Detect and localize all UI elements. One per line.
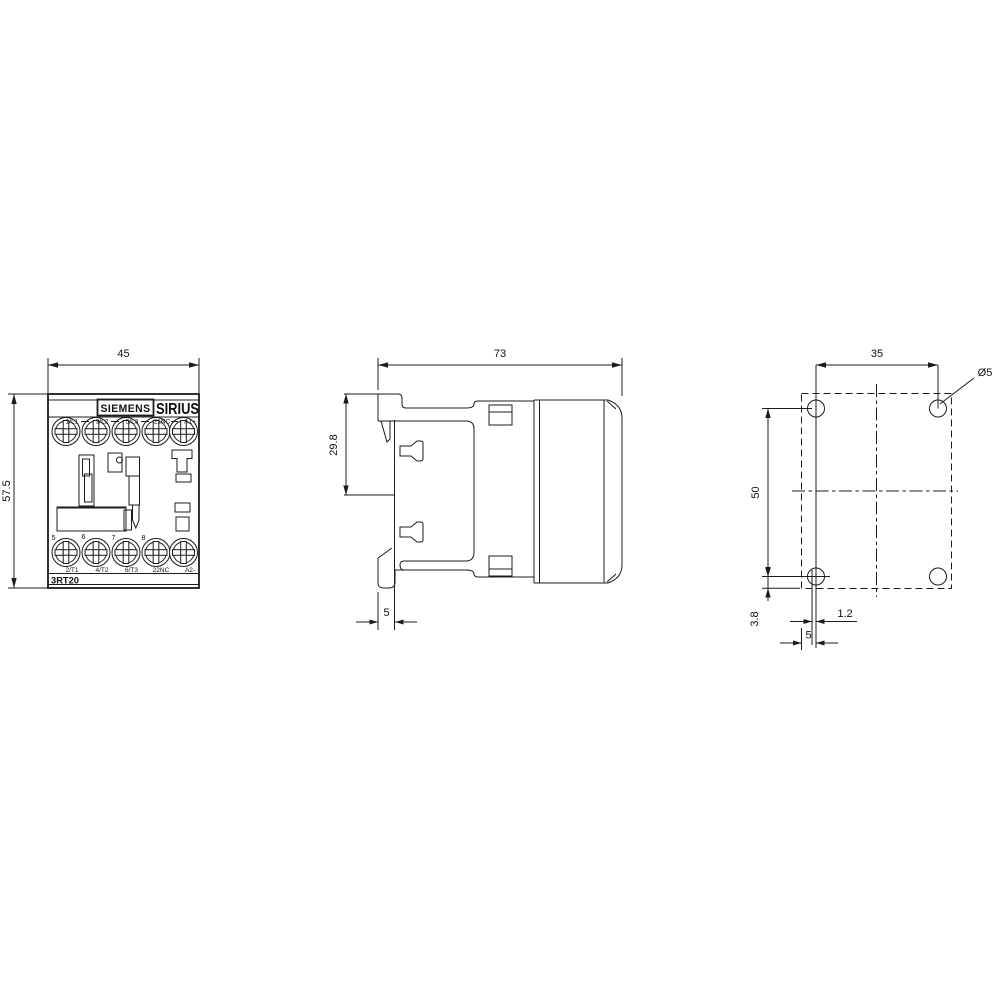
siemens-logo: SIEMENS [101,403,151,415]
arrow-up [765,588,770,597]
release-tab-top [400,441,423,461]
contact-number: 5 [52,535,56,542]
mounting-hole [930,568,947,585]
terminal-label: 22NC [153,567,170,574]
release-tab-bottom [400,522,423,542]
terminal-labels-bottom: 2/T1 4/T2 6/T3 22NC A2- [65,567,195,574]
terminal-label: 4/T2 [95,567,108,574]
side-view: 73 29.8 5 [328,348,622,630]
dimension-drawing: 45 57.5 SIEMENS SIRIUS 1/L1 3/L2 5/L3 21… [0,0,1000,1000]
model-label: 3RT20 [51,576,79,587]
front-mid-features [57,450,192,531]
terminal-label: A2- [185,567,195,574]
hole-diameter-label: Ø5 [978,367,993,379]
arrow-up [343,394,348,404]
contact-number: 6 [82,534,86,541]
arrow-down [343,486,348,496]
mounting-feet-detail [489,405,512,576]
arrow-left [816,362,826,367]
sirius-logo: SIRIUS [156,401,199,418]
screw-icon [142,539,170,567]
foot-block [489,556,512,576]
terminal-label: 2/T1 [65,567,78,574]
front-view: 45 57.5 SIEMENS SIRIUS 1/L1 3/L2 5/L3 21… [1,348,199,588]
foot-block [489,405,512,425]
terminal-label: 6/T3 [125,567,138,574]
arrow-left [816,641,825,646]
terminal-label: 21NC [154,419,171,426]
arrow-down [765,568,770,577]
drawing-canvas: 45 57.5 SIEMENS SIRIUS 1/L1 3/L2 5/L3 21… [0,0,1000,1000]
screw-icon [170,539,198,567]
arrow-left [48,362,58,367]
dim-side-offset: 5 [805,630,811,642]
dim-din-rail: 29.8 [328,434,340,455]
screw-icon [112,539,140,567]
terminal-label: 1/L1 [66,419,79,426]
dim-side-depth: 73 [494,348,506,360]
arrow-down [11,578,16,588]
arrow-right [928,362,938,367]
dim-front-height: 57.5 [1,480,13,501]
dim-slot-offset: 1.2 [837,608,852,620]
dim-hole-spacing-h: 35 [871,348,883,360]
arrow-right [189,362,199,367]
contact-number: 8 [142,535,146,542]
arrow-left [378,362,388,367]
contact-number: 7 [112,535,116,542]
terminal-label: 3/L2 [96,419,109,426]
screw-icon [52,539,80,567]
arrow-left [816,619,825,624]
side-dim-lines [344,358,622,630]
arrow-up [765,409,770,419]
terminal-label: A1+ [184,419,196,426]
arrow-right [804,619,813,624]
arrow-right [370,620,379,625]
drill-pattern-view: 35 Ø5 50 3.8 1.2 5 [749,348,992,650]
dim-bottom-offset: 3.8 [749,611,761,626]
screw-icon [82,539,110,567]
terminal-screws-bottom [52,539,198,567]
arrow-up [11,394,16,404]
terminal-label: 5/L3 [126,419,139,426]
arrow-right [612,362,622,367]
arrow-left [395,620,404,625]
dim-hole-spacing-v: 50 [750,486,762,498]
side-profile [378,394,622,630]
dim-front-width: 45 [117,348,129,360]
dim-claw-depth: 5 [383,607,389,619]
arrow-right [793,641,802,646]
drill-dim-lines [762,365,974,650]
